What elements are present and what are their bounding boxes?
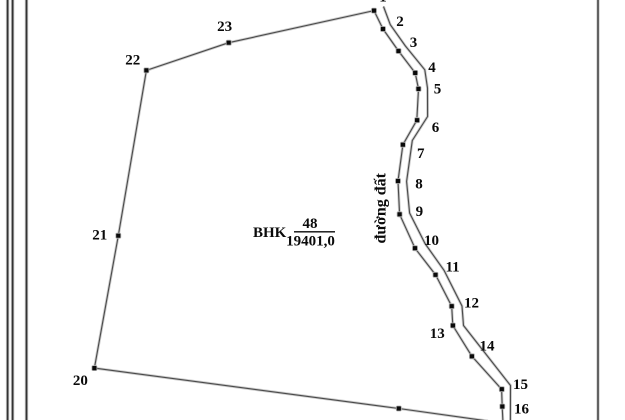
svg-text:7: 7 — [417, 146, 425, 162]
svg-text:14: 14 — [480, 338, 496, 354]
svg-text:BHK: BHK — [253, 225, 287, 241]
svg-text:16: 16 — [514, 401, 530, 417]
svg-text:23: 23 — [217, 19, 232, 35]
svg-text:19401,0: 19401,0 — [286, 234, 335, 250]
svg-text:3: 3 — [410, 35, 418, 51]
svg-text:12: 12 — [464, 295, 479, 311]
svg-text:5: 5 — [434, 82, 442, 98]
svg-text:1: 1 — [379, 0, 387, 6]
svg-text:13: 13 — [430, 326, 445, 342]
svg-text:11: 11 — [446, 259, 460, 275]
svg-text:9: 9 — [416, 204, 424, 220]
svg-text:22: 22 — [125, 52, 140, 68]
svg-text:15: 15 — [513, 377, 528, 393]
svg-text:21: 21 — [92, 228, 107, 244]
svg-text:48: 48 — [303, 216, 318, 232]
svg-text:8: 8 — [415, 177, 423, 193]
svg-text:10: 10 — [424, 233, 439, 249]
svg-text:2: 2 — [396, 14, 404, 30]
svg-text:6: 6 — [432, 120, 440, 136]
svg-text:20: 20 — [73, 373, 88, 389]
svg-text:4: 4 — [428, 60, 436, 76]
svg-text:đường đất: đường đất — [373, 172, 390, 243]
